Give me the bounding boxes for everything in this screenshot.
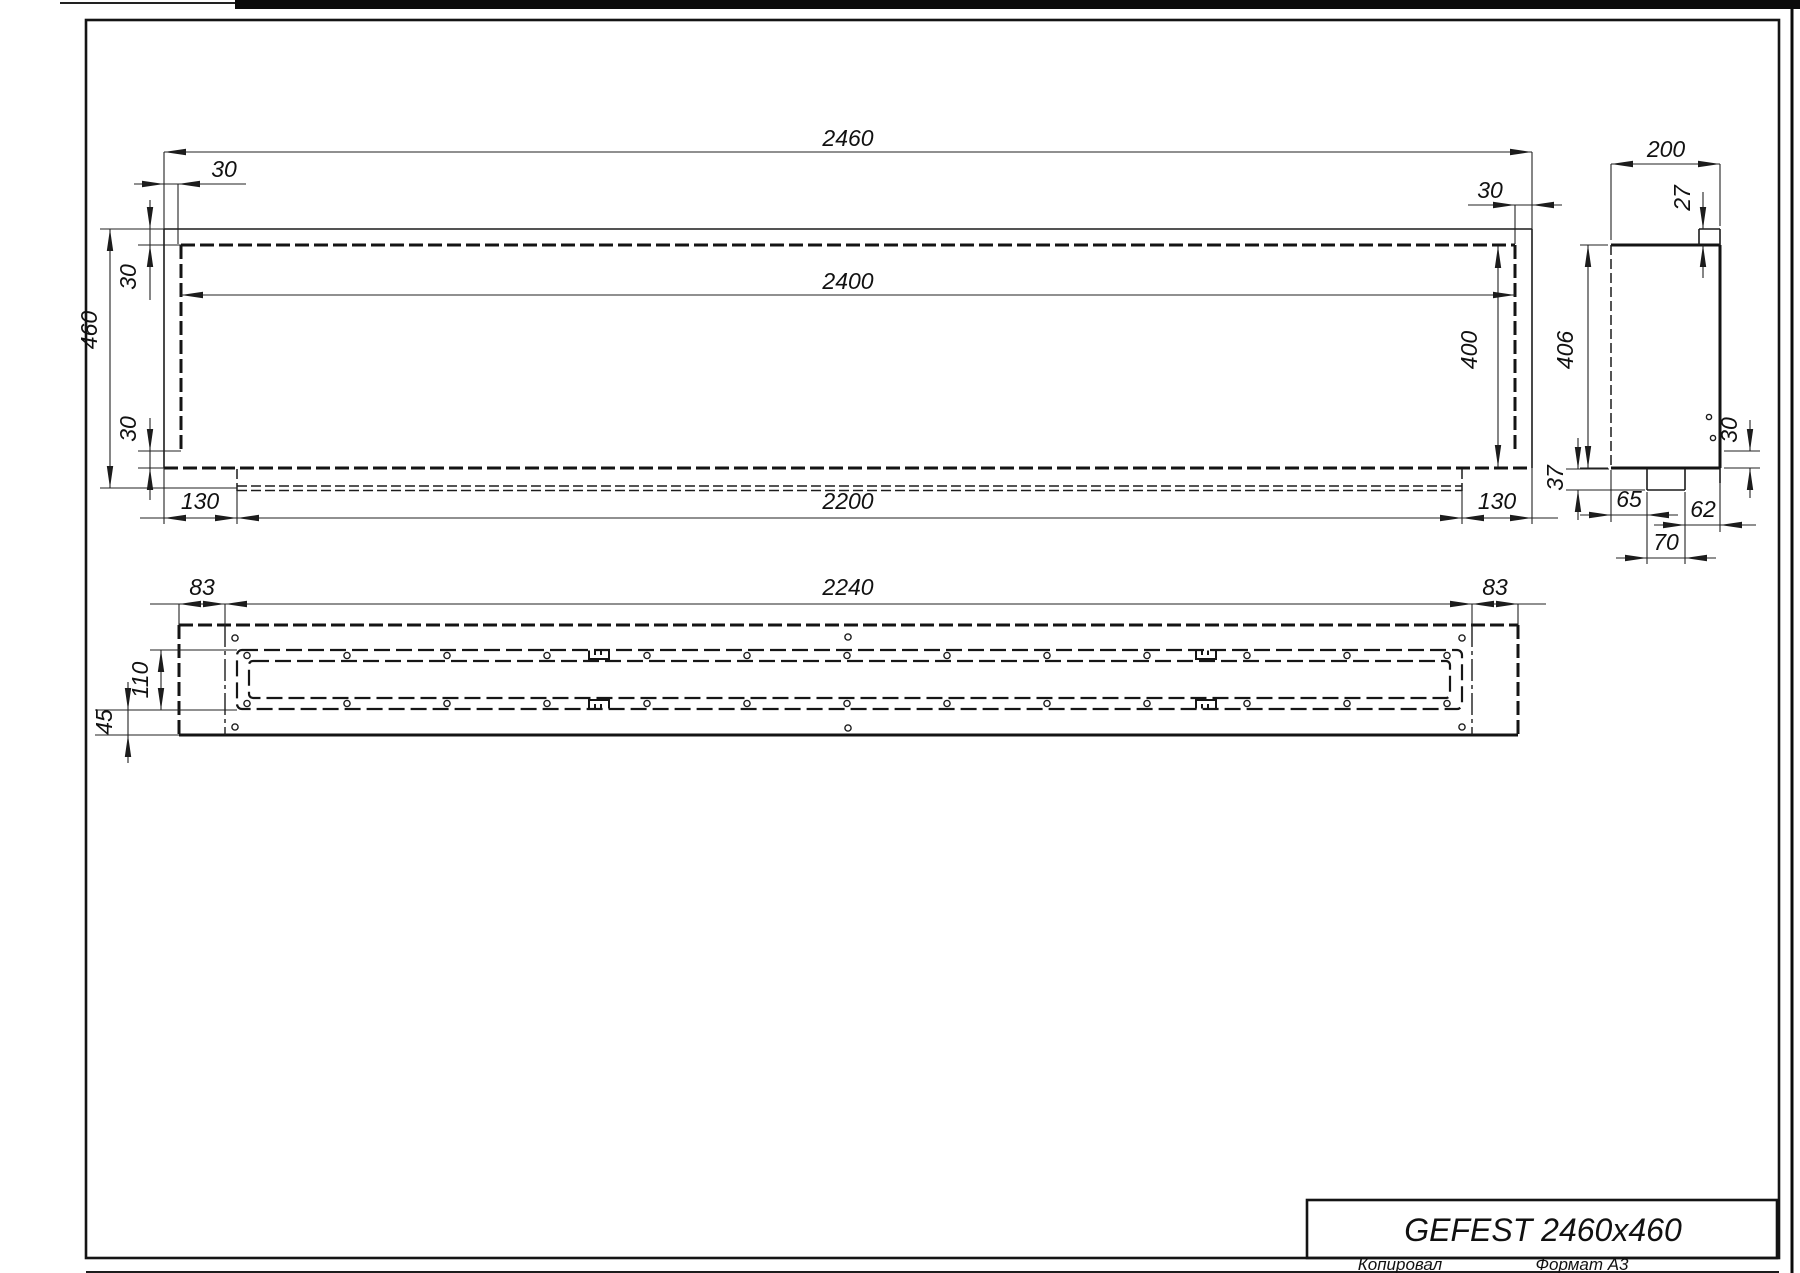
title-block-model: GEFEST 2460x460 <box>1404 1212 1682 1248</box>
dim-bottom-insert-width: 2240 <box>821 574 873 600</box>
paper-edges <box>60 0 1800 1273</box>
dim-side-seg-mid: 70 <box>1653 529 1679 555</box>
dim-front-left-inset: 30 <box>211 156 237 182</box>
dim-front-inner-width: 2400 <box>821 268 873 294</box>
dim-bottom-right-margin: 83 <box>1482 574 1508 600</box>
side-view-linework <box>1611 229 1720 490</box>
footer-format-label: Формат А3 <box>1535 1255 1629 1273</box>
dim-front-bottom-inset: 30 <box>115 416 141 442</box>
dim-side-top-lip: 27 <box>1669 184 1695 212</box>
dim-side-bottom-flange: 37 <box>1542 464 1568 491</box>
dim-front-tray-right-offset: 130 <box>1478 488 1517 514</box>
burner-rim-holes-top <box>244 652 1450 658</box>
dim-side-hole-offset: 30 <box>1716 417 1742 443</box>
drawing-frame <box>86 20 1779 1258</box>
dim-front-right-inset: 30 <box>1477 177 1503 203</box>
dim-front-tray-width: 2200 <box>821 488 873 514</box>
dim-side-seg-left: 65 <box>1616 486 1642 512</box>
dimension-arrows <box>107 149 1753 757</box>
footer-copied-label: Копировал <box>1358 1255 1443 1273</box>
dim-side-seg-right: 62 <box>1690 496 1716 522</box>
dim-bottom-left-margin: 83 <box>189 574 215 600</box>
dim-bottom-burner-depth: 110 <box>127 661 153 698</box>
dim-side-body-height: 406 <box>1552 331 1578 370</box>
technical-drawing: GEFEST 2460x460 Копировал Формат А3 <box>0 0 1800 1273</box>
dim-front-overall-width: 2460 <box>821 125 873 151</box>
side-hole-lower <box>1710 435 1715 440</box>
dim-side-depth: 200 <box>1646 136 1686 162</box>
burner-rim-holes-bottom <box>244 700 1450 706</box>
dimension-texts: 2460 30 30 2400 460 30 30 400 130 2200 1… <box>76 125 1742 735</box>
flange-holes <box>232 634 1465 731</box>
dim-front-inner-height: 400 <box>1456 331 1482 370</box>
latch-notches <box>589 651 1216 709</box>
side-hole-upper <box>1706 414 1711 419</box>
dim-front-tray-left-offset: 130 <box>181 488 220 514</box>
drawing-sheet: GEFEST 2460x460 Копировал Формат А3 <box>0 0 1800 1273</box>
bottom-view-linework <box>179 625 1518 735</box>
dim-bottom-flange-depth: 45 <box>91 709 117 735</box>
dim-front-top-inset: 30 <box>115 264 141 290</box>
dim-front-overall-height: 460 <box>76 311 102 350</box>
